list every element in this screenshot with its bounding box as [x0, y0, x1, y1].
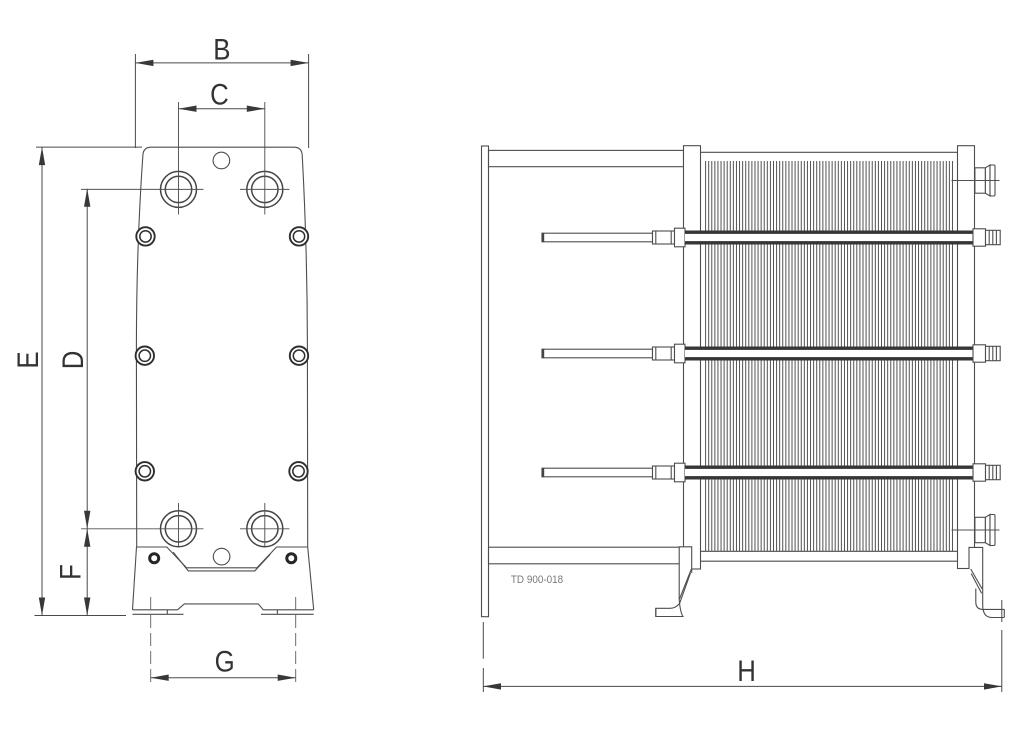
- svg-text:E: E: [11, 351, 44, 368]
- svg-text:C: C: [210, 78, 229, 111]
- svg-text:TD 900-018: TD 900-018: [511, 575, 563, 587]
- svg-text:G: G: [215, 645, 235, 678]
- svg-text:H: H: [737, 654, 756, 687]
- svg-text:D: D: [56, 351, 89, 370]
- svg-text:F: F: [54, 564, 87, 580]
- svg-text:B: B: [213, 33, 230, 66]
